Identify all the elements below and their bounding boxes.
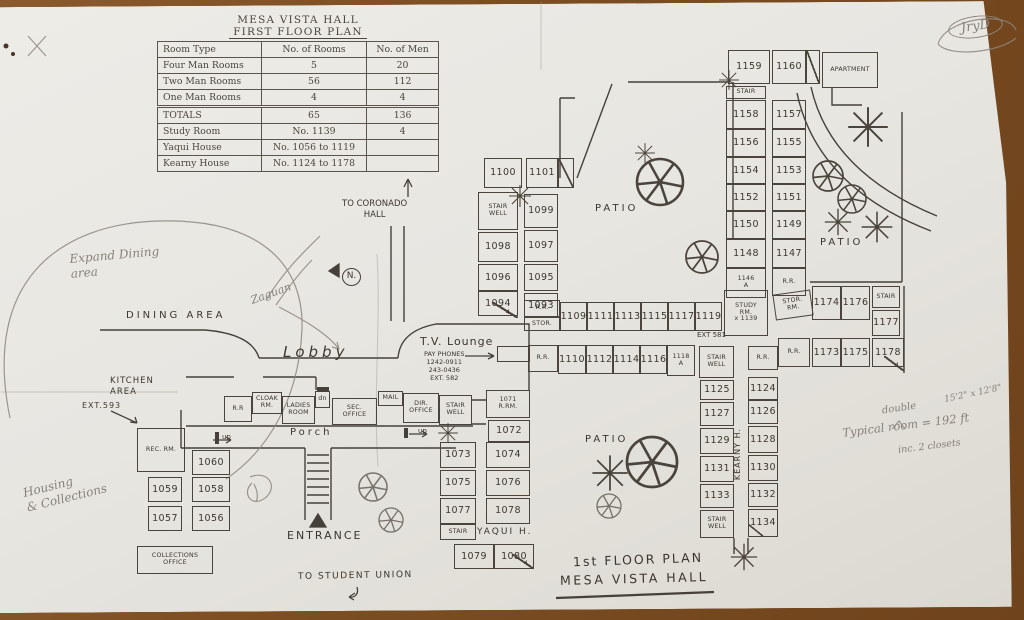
room-1116: 1116: [640, 345, 667, 374]
label-to-coronado: TO CORONADO HALL: [342, 199, 407, 220]
room-1160: 1160: [772, 50, 806, 84]
room-1149: 1149: [772, 211, 806, 239]
room-1115: 1115: [641, 302, 668, 331]
room-label: 1177: [873, 318, 899, 328]
room-label: 1113: [615, 312, 641, 322]
room-1111: 1111: [587, 302, 614, 331]
room-1060: 1060: [192, 450, 230, 475]
label-lobby: Lobby: [283, 343, 348, 362]
room-apartment: APARTMENT: [822, 52, 878, 88]
label-ext-593: EXT.593: [82, 401, 121, 411]
room-label: 1109: [561, 312, 587, 322]
room-1154: 1154: [726, 157, 766, 184]
room-1071: 1071 R.RM.: [486, 390, 530, 418]
room-1074: 1074: [486, 442, 530, 468]
room-sec-: SEC. OFFICE: [332, 398, 377, 425]
room-label: 1148: [733, 249, 759, 259]
room-label: 1060: [198, 458, 224, 468]
room-label: 1079: [461, 552, 487, 562]
room-label: 1125: [704, 385, 730, 395]
room-label: R.R.: [782, 279, 795, 286]
room-1133: 1133: [700, 484, 734, 508]
room-label: R.R: [232, 406, 243, 413]
label-patio-south: PATIO: [585, 434, 628, 447]
room-label: COLLECTIONS OFFICE: [152, 553, 198, 566]
room-label: STOR. RM.: [782, 297, 804, 313]
room-1159: 1159: [728, 50, 770, 84]
label-entrance: ENTRANCE: [287, 529, 362, 543]
room-1079: 1079: [454, 544, 494, 569]
room-1126: 1126: [748, 400, 778, 424]
room-label: STAIR WELL: [446, 403, 465, 416]
room-label: DIR. OFFICE: [409, 401, 433, 414]
room-label: 1129: [704, 436, 730, 446]
label-expand-dining: Expand Dining area: [69, 244, 161, 282]
label-porch: Porch: [290, 427, 333, 440]
room-label: 1119: [696, 312, 722, 322]
room-1155: 1155: [772, 129, 806, 157]
door-1080: 4: [512, 554, 534, 569]
room-label: 1059: [152, 485, 178, 495]
room-1078: 1078: [486, 498, 530, 524]
label-housing-collections: Housing & Collections: [22, 467, 109, 516]
room-label: R.R.: [787, 349, 800, 356]
label-plan-title-2: MESA VISTA HALL: [560, 569, 708, 588]
label-up-right: up: [418, 427, 427, 436]
door-1160: [806, 50, 820, 84]
room-1130: 1130: [748, 455, 778, 481]
room-ladies: LADIES ROOM: [282, 396, 315, 424]
room-label: 1075: [445, 478, 471, 488]
room-1076: 1076: [486, 470, 530, 496]
label-double-note: double: [881, 401, 917, 418]
label-dining-area: DINING AREA: [126, 310, 225, 323]
room-label: 1098: [485, 242, 511, 252]
room-1176: 1176: [841, 286, 870, 320]
room-label: 1116: [641, 355, 667, 365]
label-tv-lounge: T.V. Lounge: [420, 335, 493, 349]
label-patio-east: PATIO: [820, 237, 863, 250]
room-label: 1100: [490, 168, 516, 178]
room-label: 1099: [528, 206, 554, 216]
room-label: 1154: [733, 166, 759, 176]
room-label: 1126: [750, 407, 776, 417]
room-1158: 1158: [726, 100, 766, 129]
label-typical-room-note: Typical room = 192 ft: [842, 410, 970, 440]
room-label: 1127: [704, 409, 730, 419]
room-label: 1097: [528, 241, 554, 251]
stair-north: STAIR: [726, 86, 766, 99]
room-label: 1076: [495, 478, 521, 488]
room-label: 1174: [814, 298, 840, 308]
room-label: dn: [318, 396, 326, 403]
stairwell-kearny-top: STAIR WELL: [699, 346, 734, 378]
room-label: R.R.: [536, 355, 549, 362]
room-1096: 1096: [478, 264, 518, 291]
room-mail: MAIL: [378, 391, 403, 406]
room-label: 1133: [704, 491, 730, 501]
room-1098: 1098: [478, 232, 518, 262]
room-label: 1074: [495, 450, 521, 460]
room-label: 1071 R.RM.: [499, 397, 518, 410]
rr-rowB: R.R.: [528, 345, 558, 372]
room-label: 1153: [776, 166, 802, 176]
room-label: 1101: [529, 168, 555, 178]
room-1110: 1110: [558, 345, 586, 374]
rr-north: R.R.: [772, 268, 806, 296]
room-label: 1131: [704, 464, 730, 474]
room-1177: 1177: [872, 310, 900, 336]
label-ext-581: EXT 581: [697, 331, 726, 340]
stairwell-office: STAIR WELL: [439, 395, 472, 425]
room-label: 1117: [669, 312, 695, 322]
room-label: 1056: [198, 514, 224, 524]
label-kearny-h: KEARNY H.: [733, 428, 743, 480]
scanned-floorplan-photo: MESA VISTA HALL FIRST FLOOR PLAN Room Ty…: [0, 0, 1024, 620]
label-zaguan: Zaguan: [249, 280, 293, 307]
label-up-left: up: [222, 433, 231, 442]
room-label: REC. RM.: [146, 447, 176, 454]
room-label: 1095: [528, 273, 554, 283]
room-label: 1155: [776, 138, 802, 148]
door-1178: 4: [884, 356, 904, 371]
door-1134: [748, 524, 764, 537]
room-1097: 1097: [524, 230, 558, 262]
room-1129: 1129: [700, 428, 734, 454]
room-label: APARTMENT: [830, 67, 870, 74]
room-1153: 1153: [772, 157, 806, 184]
room-1100: 1100: [484, 158, 522, 188]
room-1117: 1117: [668, 302, 695, 331]
room-1127: 1127: [700, 402, 734, 426]
room-label: 1152: [733, 193, 759, 203]
room-label: 1078: [495, 506, 521, 516]
room-label: 1124: [750, 384, 776, 394]
room-1073: 1073: [440, 442, 476, 468]
label-closets-note: inc. 2 closets: [898, 437, 962, 456]
stor-rowA: STOR.: [524, 317, 560, 331]
room-1099: 1099: [524, 194, 558, 228]
room-1125: 1125: [700, 380, 734, 400]
room-1175: 1175: [841, 338, 870, 367]
room-label: 1173: [814, 348, 840, 358]
room-label: 1058: [198, 485, 224, 495]
room-1157: 1157: [772, 100, 806, 129]
room-label: 1176: [843, 298, 869, 308]
door-1101: [558, 158, 574, 188]
stairwell-kearny-south: STAIR WELL: [700, 510, 734, 538]
room-1146: 1146 A: [726, 268, 766, 298]
stairwell-west: STAIR WELL: [478, 192, 518, 230]
room-dn: dn: [315, 391, 330, 408]
room-label: 1130: [750, 463, 776, 473]
floorplan-layer: 11001101STAIR WELL1099109810971096109510…: [0, 0, 1024, 620]
rr-rowA: R.R.: [524, 300, 560, 317]
room-label: STOR.: [532, 321, 552, 328]
label-kitchen-area: KITCHEN AREA: [110, 376, 154, 397]
label-dim-note: 15'2" x 12'8": [943, 383, 1002, 406]
room-1128: 1128: [748, 426, 778, 453]
payphone-box: [497, 346, 530, 362]
room-label: 1156: [733, 138, 759, 148]
room-1077: 1077: [440, 498, 476, 524]
label-pay-phones: PAY PHONES 1242-0911 243-0436 EXT. 582: [424, 350, 465, 383]
room-label: 1110: [559, 355, 585, 365]
label-plan-title-1: 1st FLOOR PLAN: [573, 550, 704, 570]
room-1058: 1058: [192, 477, 230, 502]
room-label: 1149: [776, 220, 802, 230]
room-label: 1077: [445, 506, 471, 516]
room-label: LADIES ROOM: [287, 403, 311, 416]
room-1075: 1075: [440, 470, 476, 496]
room-label: 1158: [733, 110, 759, 120]
room-1095: 1095: [524, 264, 558, 291]
room-1109: 1109: [560, 302, 587, 331]
room-label: STAIR WELL: [489, 204, 508, 217]
room-1101: 1101: [526, 158, 558, 188]
room-label: R.R.: [756, 355, 769, 362]
room-label: 1096: [485, 273, 511, 283]
label-yaqui-h: YAQUI H.: [477, 527, 532, 538]
room-1148: 1148: [726, 239, 766, 268]
stair-east: STAIR: [872, 286, 900, 308]
room-cloak: CLOAK RM.: [252, 392, 282, 414]
room-label: STAIR: [449, 529, 468, 536]
room-collections: COLLECTIONS OFFICE: [137, 546, 213, 574]
room-1114: 1114: [613, 345, 640, 374]
room-label: 1132: [750, 490, 776, 500]
room-label: 1128: [750, 435, 776, 445]
room-label: 4: [524, 561, 528, 568]
label-patio-center: PATIO: [595, 203, 638, 216]
room-label: MAIL: [383, 395, 399, 402]
room-label: 1057: [152, 514, 178, 524]
room-1072: 1072: [488, 420, 530, 442]
room-label: STAIR WELL: [707, 355, 726, 368]
room-1056: 1056: [192, 506, 230, 531]
room-1119: 1119: [695, 302, 722, 331]
room-dir-: DIR. OFFICE: [403, 393, 439, 423]
room-label: STAIR: [877, 294, 896, 301]
room-label: 1118 A: [673, 354, 690, 367]
room-1156: 1156: [726, 129, 766, 157]
room-label: 1114: [614, 355, 640, 365]
room-1057: 1057: [148, 506, 182, 531]
room-label: 1115: [642, 312, 668, 322]
room-1113: 1113: [614, 302, 641, 331]
room-1112: 1112: [586, 345, 613, 374]
room-label: 1073: [445, 450, 471, 460]
rr-office: R.R: [224, 396, 252, 422]
room-label: 1157: [776, 110, 802, 120]
label-jryd-initials: JryD: [947, 12, 1005, 42]
room-label: 1072: [496, 426, 522, 436]
room-rec-rm-: REC. RM.: [137, 428, 185, 472]
room-label: 1112: [587, 355, 613, 365]
room-1124: 1124: [748, 377, 778, 400]
room-label: SEC. OFFICE: [343, 405, 367, 418]
room-1132: 1132: [748, 483, 778, 507]
room-label: 1147: [776, 249, 802, 259]
room-1118: 1118 A: [667, 345, 695, 376]
room-1147: 1147: [772, 239, 806, 268]
stair4-west: 4: [492, 302, 518, 318]
label-north-mark: N.: [342, 268, 361, 286]
room-label: 1111: [588, 312, 614, 322]
room-label: 1150: [733, 220, 759, 230]
room-1173: 1173: [812, 338, 841, 367]
room-label: STAIR: [737, 89, 756, 96]
rr-kearny-top: R.R.: [748, 346, 778, 370]
rr-east: R.R.: [778, 338, 810, 367]
room-label: 1159: [736, 62, 762, 72]
label-to-student-union: TO STUDENT UNION: [298, 570, 413, 583]
room-label: R.R.: [535, 305, 548, 312]
room-label: 1146 A: [738, 276, 755, 289]
room-label: 1175: [843, 348, 869, 358]
room-1151: 1151: [772, 184, 806, 211]
room-label: STUDY RM. x 1139: [735, 303, 758, 323]
room-1174: 1174: [812, 286, 841, 320]
room-1152: 1152: [726, 184, 766, 211]
stair-yaqui: STAIR: [440, 524, 476, 540]
room-label: 1160: [776, 62, 802, 72]
room-label: CLOAK RM.: [256, 396, 278, 409]
room-1059: 1059: [148, 477, 182, 502]
room-label: STAIR WELL: [708, 517, 727, 530]
room-1131: 1131: [700, 456, 734, 482]
room-1150: 1150: [726, 211, 766, 239]
room-label: 1151: [776, 193, 802, 203]
room-label: 4: [506, 310, 510, 317]
room-label: 4: [895, 363, 899, 370]
